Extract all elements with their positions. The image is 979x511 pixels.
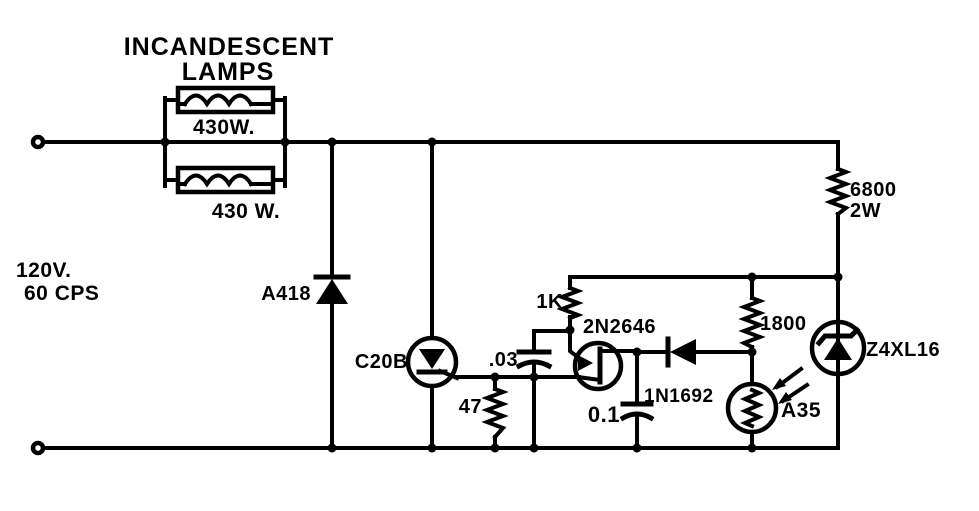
resistor-1k-label: 1K <box>536 291 563 313</box>
diode-1n1692-symbol <box>670 339 696 365</box>
resistor-47-label: 47 <box>459 396 482 418</box>
source-frequency-label: 60 CPS <box>24 282 99 305</box>
resistor-1800-symbol <box>744 298 760 347</box>
zener-z4xl16 <box>812 322 864 374</box>
ballast-resistor-6800-branch <box>830 142 846 448</box>
junction-dot <box>161 138 170 147</box>
gate-resistor-47-branch <box>487 377 503 448</box>
resistor-1800-branch <box>744 277 760 384</box>
wire-capacitor-03 <box>534 331 570 448</box>
junction-dot <box>491 373 500 382</box>
photocell-a35-label: A35 <box>781 399 821 422</box>
junction-dot <box>748 273 757 282</box>
junction-dot <box>428 138 437 147</box>
junction-dot <box>428 444 437 453</box>
resistor-6800-label: 6800 <box>850 179 897 201</box>
resistor-1k-symbol <box>562 288 578 318</box>
schematic-page: INCANDESCENT LAMPS 430W. 430 W. 120V. 60… <box>0 0 979 511</box>
scr-c20b-label: C20B <box>355 351 408 373</box>
diode-1n1692-label: 1N1692 <box>644 386 714 407</box>
junction-dot <box>566 326 575 335</box>
junction-dot <box>748 348 757 357</box>
ujt-2n2646-label: 2N2646 <box>583 316 656 338</box>
resistor-6800-power-label: 2W <box>850 200 881 222</box>
source-voltage-label: 120V. <box>16 259 71 282</box>
rectifier-a418-label: A418 <box>261 283 311 305</box>
lamp-top-filament-icon <box>178 96 273 105</box>
lamp-bottom-label: 430 W. <box>212 200 280 223</box>
circuit-schematic: INCANDESCENT LAMPS 430W. 430 W. 120V. 60… <box>0 0 979 511</box>
ujt-emitter-arrow-icon <box>578 355 593 371</box>
resistor-6800-symbol <box>830 169 846 214</box>
title-line2: LAMPS <box>182 58 275 86</box>
junction-dot <box>633 348 642 357</box>
junction-dot <box>281 138 290 147</box>
junction-dot <box>328 138 337 147</box>
resistor-47-symbol <box>487 389 503 437</box>
ujt-2n2646 <box>570 330 637 389</box>
lamp-bottom-filament-icon <box>178 176 273 185</box>
rectifier-a418-symbol <box>316 279 348 304</box>
input-terminal-top <box>33 137 43 147</box>
scr-c20b-branch <box>408 142 457 448</box>
junction-dot <box>530 444 539 453</box>
zener-triangle <box>824 338 852 360</box>
rectifier-a418-branch <box>316 142 348 448</box>
zener-z4xl16-label: Z4XL16 <box>866 339 940 361</box>
junction-dot <box>491 444 500 453</box>
junction-dot <box>328 444 337 453</box>
junction-dot <box>834 273 843 282</box>
junction-dot <box>530 373 539 382</box>
resistor-1800-label: 1800 <box>760 313 807 335</box>
capacitor-03-label: .03 <box>489 349 518 371</box>
junction-dot <box>748 444 757 453</box>
photocell-element-symbol <box>745 390 759 426</box>
capacitor-01-label: 0.1 <box>588 402 620 427</box>
title-line1: INCANDESCENT <box>124 33 335 61</box>
input-terminal-bottom <box>33 443 43 453</box>
junction-dot <box>633 444 642 453</box>
resistor-1k-branch <box>562 277 578 331</box>
scr-anode-triangle <box>419 349 445 369</box>
coupling-capacitor-03-branch <box>519 331 570 448</box>
lamp-top-label: 430W. <box>193 116 255 139</box>
diode-1n1692-branch <box>637 339 752 365</box>
